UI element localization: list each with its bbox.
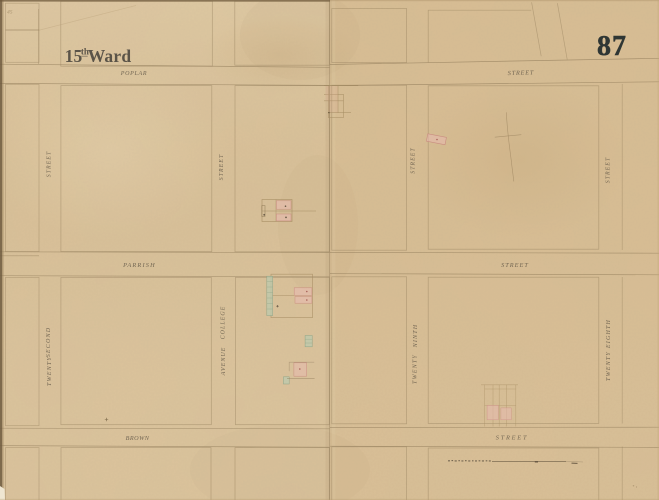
svg-text:COLLEGE: COLLEGE bbox=[221, 306, 227, 340]
svg-text:PARRISH: PARRISH bbox=[122, 262, 156, 269]
svg-text:STREET: STREET bbox=[411, 147, 417, 174]
svg-text:STREET: STREET bbox=[606, 157, 612, 184]
svg-text:TWENTY: TWENTY bbox=[47, 356, 53, 386]
svg-text:STREET: STREET bbox=[501, 262, 529, 269]
svg-text:POPLAR: POPLAR bbox=[120, 71, 148, 77]
svg-text:87: 87 bbox=[597, 31, 627, 62]
svg-text:STREET: STREET bbox=[47, 151, 53, 178]
svg-text:STREET: STREET bbox=[508, 69, 535, 77]
svg-text:15: 15 bbox=[65, 46, 83, 66]
svg-text:STREET: STREET bbox=[219, 154, 225, 181]
svg-text:TWENTY: TWENTY bbox=[606, 351, 612, 381]
svg-text:AVENUE: AVENUE bbox=[221, 347, 227, 377]
svg-text:EIGHTH: EIGHTH bbox=[606, 319, 612, 349]
svg-text:STREET: STREET bbox=[496, 434, 529, 441]
svg-text:Ward: Ward bbox=[88, 46, 132, 66]
svg-text:SECOND: SECOND bbox=[46, 327, 52, 358]
svg-text:45: 45 bbox=[7, 9, 13, 16]
svg-text:BROWN: BROWN bbox=[126, 435, 150, 442]
svg-text:TWENTY: TWENTY bbox=[413, 354, 419, 384]
svg-text:NINTH: NINTH bbox=[413, 324, 419, 349]
